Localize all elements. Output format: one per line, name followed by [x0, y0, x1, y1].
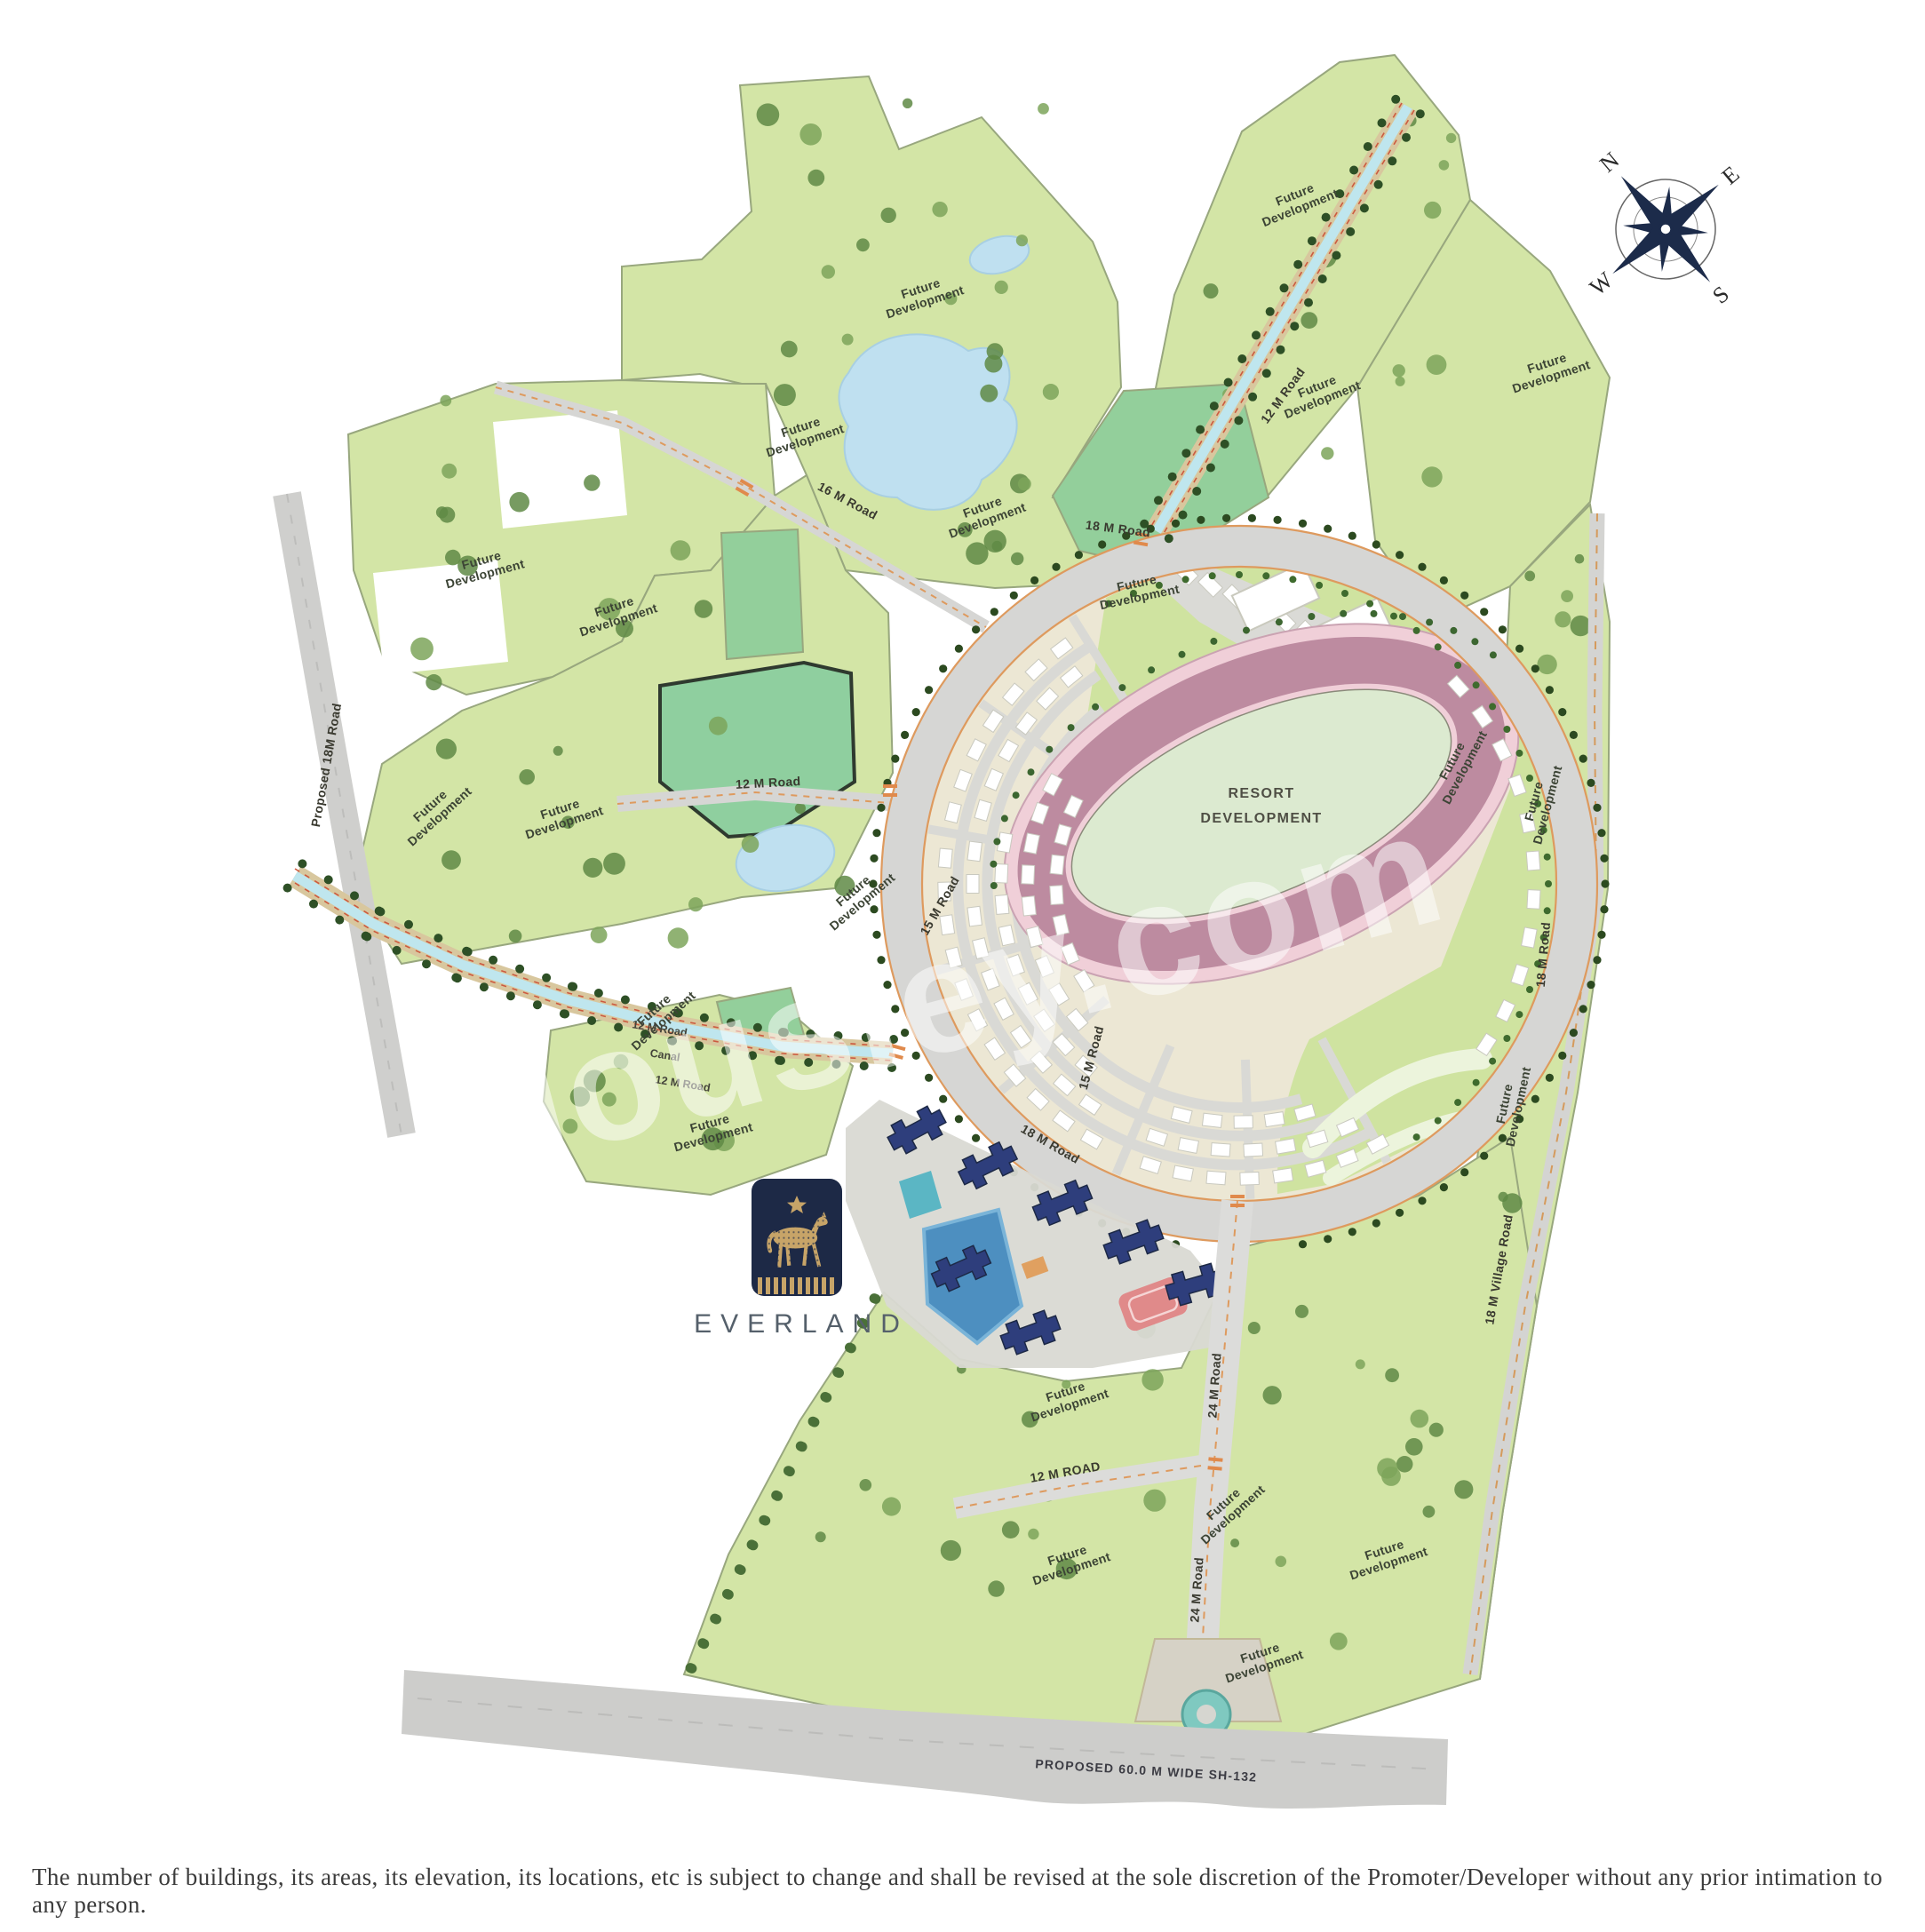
ring-tree-dot: [1418, 1197, 1426, 1205]
ring-tree-dot: [1587, 981, 1595, 989]
tree-dot: [1018, 477, 1031, 490]
ring-tree-dot: [1587, 779, 1595, 787]
ring-tree-dot: [1182, 576, 1189, 583]
canal-tree-dot: [1346, 227, 1355, 236]
tree-dot: [1002, 1521, 1020, 1538]
ring-tree-dot: [1098, 540, 1106, 548]
tree-dot: [1396, 1456, 1413, 1473]
ring-tree-dot: [1503, 1035, 1510, 1042]
ring-tree-dot: [1209, 572, 1216, 579]
track-tree-dot: [990, 861, 997, 868]
ring-tree-dot: [1440, 576, 1448, 584]
tree-dot: [1421, 466, 1442, 487]
tree-dot: [583, 858, 602, 878]
tree-dot: [1429, 1423, 1444, 1437]
ring-tree-dot: [1597, 829, 1605, 837]
tree-dot: [439, 507, 455, 523]
canal-tree-dot: [1332, 251, 1340, 260]
track-tree-dot: [1118, 684, 1126, 691]
ring-tree-dot: [1480, 608, 1488, 616]
ring-tree-dot: [891, 755, 899, 763]
villa-unit: [1234, 1116, 1253, 1128]
villa-unit: [995, 864, 1008, 884]
canal-tree-dot: [1181, 449, 1190, 457]
tree-dot: [1555, 611, 1571, 627]
tree-dot: [426, 674, 441, 690]
ring-tree-dot: [1473, 681, 1480, 688]
ring-tree-dot: [1473, 1079, 1480, 1086]
canal-tree-dot: [335, 916, 344, 925]
tree-dot: [509, 492, 529, 513]
ring-tree-dot: [1396, 1209, 1404, 1217]
ring-tree-dot: [1597, 931, 1605, 939]
canal-tree-dot: [1192, 487, 1201, 496]
tree-dot: [519, 769, 535, 785]
ring-tree-dot: [1601, 879, 1609, 887]
canal-tree-dot: [298, 859, 306, 868]
ring-tree-dot: [1324, 525, 1332, 533]
tree-dot: [932, 202, 947, 217]
tree-dot: [1204, 283, 1219, 298]
canal-tree-dot: [489, 956, 497, 965]
tree-dot: [1143, 1490, 1165, 1512]
disclaimer-text: The number of buildings, its areas, its …: [32, 1864, 1906, 1919]
tree-dot: [1301, 312, 1317, 329]
ring-tree-dot: [955, 645, 963, 653]
tree-dot: [815, 1531, 826, 1542]
canal-tree-dot: [1210, 402, 1219, 410]
ring-tree-dot: [1435, 643, 1442, 650]
canal-tree-dot: [822, 1393, 831, 1403]
ring-tree-dot: [1454, 662, 1461, 669]
villa-unit: [938, 848, 952, 868]
canal-tree-dot: [748, 1540, 758, 1550]
canal-tree-dot: [809, 1418, 819, 1427]
ring-tree-dot: [1558, 708, 1566, 716]
ring-tree-dot: [1222, 514, 1230, 522]
tree-dot: [822, 265, 835, 278]
tree-dot: [941, 1540, 961, 1561]
brand-name: EVERLAND: [694, 1309, 909, 1339]
ring-tree-dot: [1197, 516, 1205, 524]
tree-dot: [509, 930, 522, 943]
canal-tree-dot: [871, 1294, 880, 1304]
tree-dot: [799, 123, 822, 146]
canal-tree-dot: [687, 1664, 696, 1674]
ring-tree-dot: [870, 905, 878, 913]
canal-tree-dot: [724, 1590, 734, 1600]
tree-dot: [1011, 553, 1023, 565]
canal-tree-dot: [834, 1368, 844, 1378]
tree-dot: [757, 103, 780, 126]
tree-dot: [1043, 384, 1059, 400]
ring-tree-dot: [1299, 1240, 1307, 1248]
tree-dot: [987, 343, 1004, 360]
canal-tree-dot: [462, 947, 471, 956]
tree-dot: [995, 281, 1008, 294]
ring-tree-dot: [1579, 755, 1587, 763]
ring-tree-dot: [1236, 571, 1243, 578]
track-tree-dot: [1148, 666, 1155, 673]
ring-tree-dot: [872, 829, 880, 837]
tree-dot: [709, 717, 728, 735]
villa-unit: [1206, 1171, 1226, 1185]
canal-tree-dot: [1224, 378, 1233, 387]
tree-dot: [1427, 354, 1447, 375]
villa-unit: [967, 841, 982, 862]
ring-tree-dot: [1593, 804, 1601, 812]
compass-s: S: [1707, 281, 1734, 309]
canal-tree-dot: [760, 1516, 770, 1526]
ring-tree-dot: [1515, 1011, 1523, 1018]
ring-tree-dot: [1274, 516, 1282, 524]
canal-tree-dot: [1252, 330, 1261, 339]
track-tree-dot: [1450, 627, 1457, 634]
tree-dot: [1524, 571, 1535, 582]
track-tree-dot: [1028, 768, 1035, 775]
canal-tree-dot: [1388, 156, 1396, 165]
canal-tree-dot: [309, 900, 318, 909]
ring-tree-dot: [1460, 1168, 1468, 1176]
ring-tree-dot: [1248, 514, 1256, 522]
tree-dot: [988, 1580, 1004, 1596]
compass-n: N: [1595, 147, 1624, 177]
ring-tree-dot: [901, 731, 909, 739]
tree-dot: [1230, 1538, 1239, 1547]
tree-dot: [980, 385, 998, 402]
canal-tree-dot: [350, 891, 359, 900]
tree-dot: [774, 384, 796, 406]
canal-tree-dot: [283, 884, 292, 893]
ring-tree-dot: [912, 708, 920, 716]
tree-dot: [1295, 1305, 1309, 1318]
tree-dot: [1405, 1438, 1423, 1456]
ring-tree-dot: [1600, 855, 1608, 863]
ring-tree-dot: [1600, 905, 1608, 913]
canal-tree-dot: [480, 982, 489, 991]
ring-tree-dot: [1413, 627, 1420, 634]
canal-tree-dot: [533, 1000, 542, 1009]
tree-dot: [1263, 1386, 1282, 1404]
tree-dot: [410, 638, 434, 661]
ring-tree-dot: [1579, 1005, 1587, 1013]
ring-tree-dot: [1348, 532, 1356, 540]
ring-tree-dot: [1390, 613, 1397, 620]
canal-tree-dot: [1293, 260, 1302, 269]
track-tree-dot: [1371, 610, 1378, 617]
ring-tree-dot: [1454, 1099, 1461, 1106]
ring-tree-dot: [1299, 520, 1307, 528]
tree-dot: [1454, 1480, 1473, 1499]
canal-tree-dot: [1206, 464, 1215, 473]
tree-dot: [1016, 235, 1028, 246]
ring-tree-dot: [925, 686, 933, 694]
ring-tree-dot: [939, 1095, 947, 1103]
ring-tree-dot: [1546, 1074, 1554, 1082]
tree-dot: [1141, 1369, 1163, 1390]
canal-tree-dot: [362, 933, 371, 942]
ring-tree-dot: [972, 625, 980, 633]
tree-dot: [1502, 1193, 1522, 1212]
ring-tree-dot: [1372, 1219, 1380, 1227]
ring-tree-dot: [1545, 880, 1552, 887]
tree-dot: [445, 550, 461, 566]
tree-dot: [603, 853, 625, 875]
canal-tree-dot: [1391, 95, 1400, 104]
canal-tree-dot: [375, 907, 384, 916]
tree-dot: [1356, 1359, 1365, 1369]
ring-tree-dot: [877, 804, 885, 812]
ring-tree-dot: [1262, 572, 1269, 579]
ring-tree-dot: [1289, 576, 1296, 583]
tree-dot: [1439, 160, 1450, 171]
canal-tree-dot: [515, 965, 524, 974]
tree-dot: [1276, 1556, 1287, 1568]
canal-tree-dot: [773, 1491, 783, 1501]
ring-tree-dot: [1570, 1029, 1578, 1037]
ring-tree-dot: [1544, 854, 1551, 861]
site-plan-page: FutureDevelopment FutureDevelopment Futu…: [0, 0, 1925, 1932]
compass-w: W: [1585, 266, 1619, 300]
tree-dot: [436, 739, 457, 759]
canal-tree-dot: [1277, 346, 1285, 354]
tree-dot: [695, 600, 713, 618]
ring-tree-dot: [1172, 520, 1180, 528]
canal-tree-dot: [453, 974, 462, 982]
canal-tree-dot: [568, 982, 577, 991]
tree-dot: [781, 341, 798, 358]
villa-unit: [1211, 1143, 1230, 1157]
tree-dot: [807, 170, 824, 187]
tree-dot: [903, 99, 912, 108]
villa-unit: [1276, 1139, 1296, 1154]
entry-roundabout-center: [1197, 1705, 1216, 1724]
tree-dot: [591, 926, 608, 943]
master-plan-map: FutureDevelopment FutureDevelopment Futu…: [0, 0, 1925, 1932]
tree-dot: [1321, 447, 1333, 459]
tree-dot: [1575, 554, 1585, 564]
tree-dot: [1248, 1322, 1261, 1334]
canal-tree-dot: [542, 974, 551, 982]
tree-dot: [1385, 1368, 1399, 1382]
ring-tree-dot: [1503, 726, 1510, 733]
villa-unit: [966, 875, 979, 894]
ring-tree-dot: [1489, 703, 1496, 710]
ring-tree-dot: [1515, 645, 1523, 653]
white-gap: [493, 410, 627, 529]
tree-dot: [856, 238, 870, 251]
ring-tree-dot: [1531, 664, 1539, 672]
track-tree-dot: [1092, 704, 1099, 711]
ring-tree-dot: [1316, 582, 1323, 589]
canal-tree-dot: [393, 946, 402, 955]
ring-tree-dot: [1593, 956, 1601, 964]
canal-tree-dot: [798, 1442, 807, 1451]
canal-tree-dot: [1280, 283, 1289, 292]
parcel-teal: [721, 529, 803, 659]
canal-tree-dot: [1262, 369, 1271, 378]
tree-dot: [1028, 1529, 1038, 1539]
tree-dot: [1537, 655, 1556, 674]
ring-tree-dot: [1435, 1117, 1442, 1125]
tree-dot: [1446, 133, 1456, 143]
tree-dot: [1561, 590, 1573, 602]
canal-tree-dot: [736, 1565, 746, 1575]
ring-tree-dot: [1480, 1152, 1488, 1160]
ring-tree-dot: [1075, 551, 1083, 559]
ring-tree-dot: [1489, 1058, 1496, 1065]
canal-tree-dot: [1349, 166, 1358, 175]
tree-dot: [842, 334, 854, 346]
canal-tree-dot: [506, 991, 515, 1000]
ring-tree-dot: [1396, 551, 1404, 559]
villa-unit: [1244, 1143, 1263, 1157]
villa-unit: [1202, 1113, 1221, 1127]
villa-unit: [1264, 1112, 1285, 1127]
track-tree-dot: [990, 882, 998, 889]
canal-tree-dot: [1416, 109, 1425, 118]
tree-dot: [553, 746, 563, 756]
ring-tree-dot: [1030, 576, 1038, 584]
ring-tree-dot: [1372, 540, 1380, 548]
canal-tree-dot: [1322, 213, 1331, 222]
canal-tree-dot: [1378, 118, 1387, 127]
ring-tree-dot: [972, 1134, 980, 1142]
track-tree-dot: [1210, 638, 1217, 645]
ring-tree-dot: [1460, 592, 1468, 600]
ring-tree-dot: [1558, 1052, 1566, 1060]
tree-dot: [1038, 103, 1049, 115]
ring-tree-dot: [1324, 1235, 1332, 1243]
canal-tree-dot: [1179, 511, 1188, 520]
ring-tree-dot: [1515, 750, 1523, 757]
ring-tree-dot: [1440, 1183, 1448, 1191]
track-tree-dot: [1308, 613, 1315, 620]
ring-tree-dot: [1341, 590, 1348, 597]
tree-dot: [668, 927, 688, 948]
track-tree-dot: [1179, 651, 1186, 658]
canal-tree-dot: [324, 875, 333, 884]
canal-tree-dot: [1402, 133, 1411, 142]
canal-tree-dot: [1364, 142, 1372, 151]
ring-tree-dot: [1544, 907, 1551, 914]
canal-tree-dot: [847, 1343, 856, 1353]
tree-dot: [1396, 377, 1405, 386]
ring-tree-dot: [1570, 731, 1578, 739]
tree-dot: [1381, 1467, 1401, 1486]
canal-tree-dot: [1360, 203, 1369, 212]
ring-tree-dot: [1546, 686, 1554, 694]
track-tree-dot: [1068, 724, 1075, 731]
canal-tree-dot: [1154, 496, 1163, 505]
villa-unit: [1240, 1172, 1259, 1185]
tree-dot: [882, 1497, 901, 1515]
ring-tree-dot: [1348, 1228, 1356, 1236]
tree-dot: [881, 208, 896, 223]
canal-tree-dot: [1304, 298, 1313, 307]
ring-tree-dot: [1052, 563, 1060, 571]
tree-dot: [795, 803, 806, 814]
tree-dot: [1423, 1506, 1436, 1518]
tree-dot: [441, 464, 457, 479]
tree-dot: [688, 897, 703, 911]
villa-unit: [1526, 851, 1540, 871]
canal-tree-dot: [1266, 307, 1275, 316]
tree-dot: [742, 835, 760, 853]
tree-dot: [1424, 202, 1441, 219]
ring-tree-dot: [1010, 592, 1018, 600]
canal-tree-dot: [434, 934, 442, 942]
canal-tree-dot: [1290, 322, 1299, 330]
ring-tree-dot: [955, 1115, 963, 1123]
track-tree-dot: [1243, 627, 1250, 634]
canal-tree-dot: [1318, 274, 1327, 283]
track-tree-dot: [1340, 610, 1347, 617]
tree-dot: [440, 395, 451, 407]
canal-tree-dot: [422, 959, 431, 968]
canal-tree-dot: [1308, 236, 1316, 245]
ring-tree-dot: [1418, 563, 1426, 571]
ring-tree-dot: [1499, 625, 1507, 633]
tree-dot: [1330, 1633, 1348, 1650]
ring-tree-dot: [1366, 600, 1373, 608]
track-tree-dot: [1490, 651, 1497, 658]
canal-tree-dot: [1237, 354, 1246, 363]
track-tree-dot: [1399, 613, 1406, 620]
canal-tree-dot: [1234, 416, 1243, 425]
canal-tree-dot: [404, 920, 413, 929]
ring-tree-dot: [939, 664, 947, 672]
track-tree-dot: [1046, 746, 1053, 753]
ring-tree-dot: [1413, 1133, 1420, 1141]
canal-tree-dot: [785, 1467, 795, 1476]
canal-tree-dot: [699, 1639, 709, 1649]
compass-e: E: [1717, 161, 1745, 189]
track-tree-dot: [1001, 815, 1008, 822]
canal-tree-dot: [1221, 440, 1229, 449]
tree-dot: [1571, 616, 1591, 636]
track-tree-dot: [1471, 638, 1478, 645]
svg-text:RESORT: RESORT: [1228, 786, 1294, 801]
canal-tree-dot: [1165, 534, 1173, 543]
track-tree-dot: [1426, 619, 1433, 626]
ring-tree-dot: [1531, 1095, 1539, 1103]
ring-tree-dot: [870, 855, 878, 863]
canal-tree-dot: [712, 1615, 721, 1625]
canal-tree-dot: [1374, 180, 1383, 189]
villa-unit: [1273, 1168, 1293, 1183]
track-tree-dot: [993, 838, 1000, 845]
tree-dot: [966, 542, 988, 564]
track-tree-dot: [1013, 791, 1020, 799]
canal-tree-dot: [1168, 473, 1177, 481]
villa-unit: [1527, 890, 1540, 910]
tree-dot: [1411, 1410, 1429, 1428]
tree-dot: [671, 540, 691, 561]
ring-tree-dot: [990, 608, 998, 616]
tree-dot: [441, 850, 461, 870]
canal-tree-dot: [1248, 393, 1257, 402]
track-tree-dot: [1276, 618, 1283, 625]
canal-tree-dot: [1196, 425, 1205, 434]
tree-dot: [860, 1479, 872, 1491]
tree-dot: [584, 474, 600, 490]
tree-dot: [1393, 364, 1405, 377]
